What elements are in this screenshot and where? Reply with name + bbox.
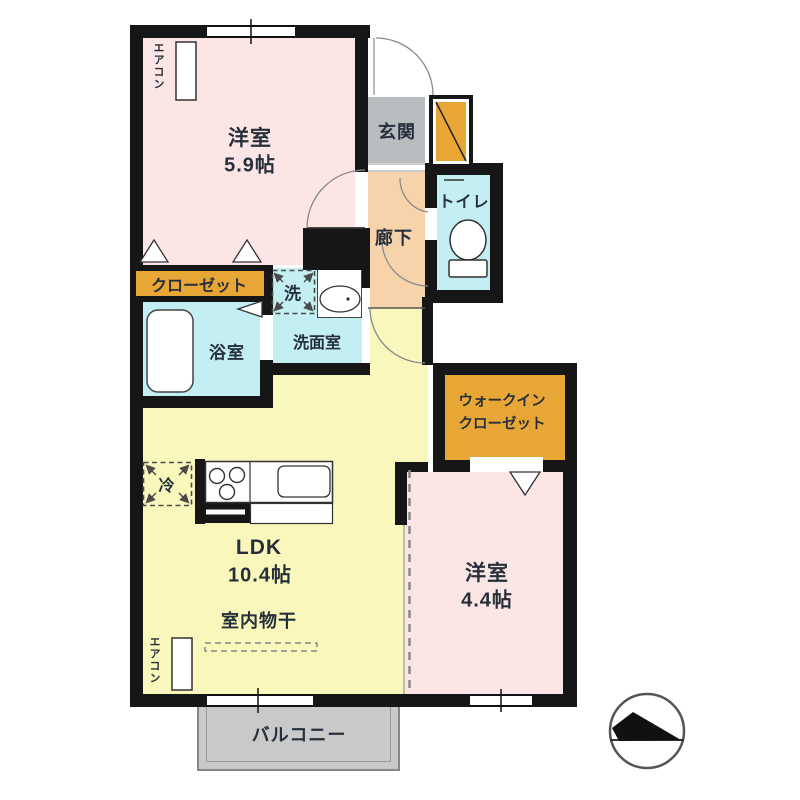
hallway-label: 廊下	[375, 224, 413, 250]
wall-washroom-bottom	[260, 363, 370, 375]
entrance-label: 玄関	[378, 118, 416, 144]
bedroom2-label: 洋室	[465, 557, 509, 587]
wall-ldk-right	[422, 297, 433, 365]
washroom-door-gap	[362, 288, 370, 308]
wall-bedroom1-bottom	[303, 228, 370, 270]
window-bedroom2	[470, 694, 532, 707]
washer-label: 洗	[284, 280, 302, 305]
wic-door-gap	[470, 457, 543, 472]
wall-bottom-a	[130, 694, 207, 707]
room-ldk	[143, 408, 428, 694]
ldk-size: 10.4帖	[228, 559, 292, 588]
wall-bedroom2-stub	[395, 462, 407, 525]
washroom-label: 洗面室	[293, 329, 341, 353]
wall-bedroom2-right	[563, 462, 577, 707]
wall-bathroom-bottom	[130, 396, 273, 408]
toilet-label: トイレ	[438, 188, 489, 212]
bathroom-label: 浴室	[209, 339, 245, 364]
toilet-door-gap	[425, 208, 437, 240]
ldk-label: LDK	[236, 536, 282, 560]
aircon-label-top: エアコン	[152, 42, 163, 90]
wic-label-line1: ウォークイン	[459, 390, 546, 411]
wall-washroom-right	[362, 228, 370, 290]
room-ldk-upper	[273, 375, 428, 408]
bedroom2-size: 4.4帖	[461, 584, 513, 613]
floor-plan: エアコン エアコン 洋室 5.9帖 玄関 トイレ 廊下 クローゼット 洗 洗面室…	[0, 0, 800, 800]
north-arrow-icon	[610, 694, 684, 768]
vanity-counter	[317, 268, 362, 318]
bedroom1-label: 洋室	[228, 122, 272, 152]
refrigerator-label: 冷	[158, 472, 175, 496]
wall-bottom-b	[313, 694, 470, 707]
entrance-door-icon	[374, 38, 433, 95]
shoe-cabinet	[436, 102, 466, 161]
wall-bedroom1-right	[355, 25, 368, 172]
closet-label: クローゼット	[151, 272, 247, 296]
room-ldk-entry	[370, 303, 428, 375]
indoor-drying-label: 室内物干	[221, 607, 297, 633]
wic-label-line2: クローゼット	[459, 413, 546, 434]
aircon-label-bottom: エアコン	[148, 636, 159, 684]
wall-kitchen-bar	[195, 503, 250, 523]
window-bedroom1	[207, 25, 295, 38]
balcony-label: バルコニー	[252, 721, 347, 747]
bedroom1-size: 5.9帖	[224, 149, 276, 178]
wall-left	[130, 25, 143, 707]
entrance-step	[368, 163, 425, 172]
window-ldk	[207, 694, 313, 707]
room-bedroom1-lower	[143, 232, 303, 265]
